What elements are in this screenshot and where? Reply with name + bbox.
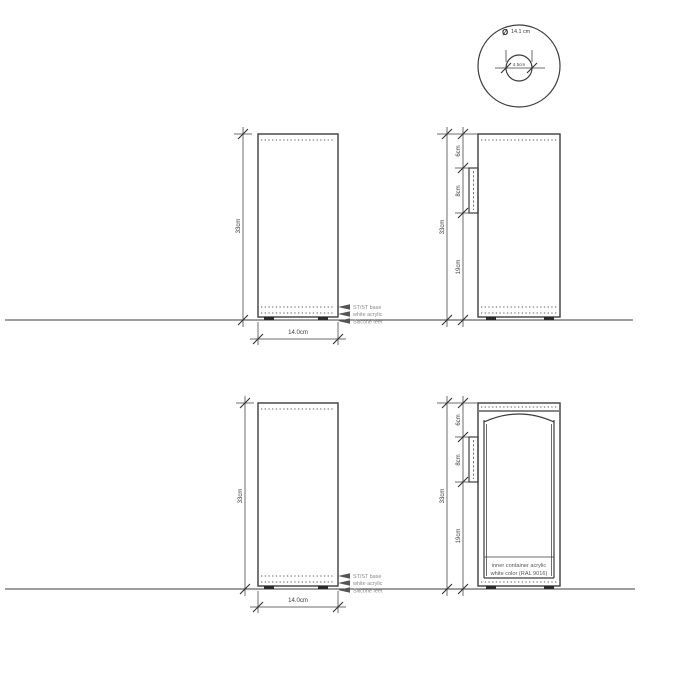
callout-acrylic: white acrylic [352, 581, 383, 587]
section-note-line2: white color (RAL 9016) [490, 571, 548, 577]
width-dimension: 14.0cm [250, 591, 346, 613]
section-view-bottom: inner container acrylic white color (RAL… [437, 396, 560, 596]
segment-bottom-label: 19cm [456, 260, 462, 275]
callout-base: ST/ST base [353, 574, 381, 580]
callout-arrow-icon [338, 304, 350, 310]
foot [486, 586, 496, 589]
width-label: 14.0cm [288, 598, 308, 604]
segment-dimensions: 6cm 8cm 19cm [455, 127, 470, 327]
callout-acrylic: white acrylic [352, 312, 383, 318]
segment-top-label: 6cm [456, 145, 462, 156]
callout-feet: Silicone feet [353, 320, 383, 326]
height-label: 33cm [440, 220, 446, 235]
callout-arrow-icon [338, 573, 350, 579]
height-label: 33cm [238, 489, 244, 504]
material-callouts: ST/ST base white acrylic Silicone feet [338, 573, 383, 594]
diameter-symbol: Ø [502, 28, 508, 37]
foot [318, 586, 328, 589]
foot [486, 317, 496, 320]
callout-base: ST/ST base [353, 305, 381, 311]
segment-middle-label: 8cm [456, 185, 462, 196]
segment-dimensions: 6cm 8cm 19cm [455, 396, 470, 596]
material-callouts: ST/ST base white acrylic Silicone feet [338, 304, 383, 325]
height-label: 33cm [440, 489, 446, 504]
height-dimension: 33cm [236, 396, 254, 596]
foot [264, 586, 274, 589]
foot [544, 317, 554, 320]
segment-middle-label: 8cm [456, 454, 462, 465]
section-note-line1: inner container acrylic [492, 563, 547, 569]
bin-body [478, 134, 560, 317]
segment-bottom-label: 19cm [456, 529, 462, 544]
technical-drawing-canvas: Ø 14.1 cm 4.5cm 33cm 14.0cm ST/ST ba [0, 0, 700, 700]
foot [318, 317, 328, 320]
bin-body [258, 403, 338, 586]
front-elevation-bottom: 33cm 14.0cm ST/ST base white acrylic Sil… [236, 396, 383, 613]
width-dimension: 14.0cm [250, 322, 346, 345]
inner-diameter-label: 4.5cm [513, 62, 526, 67]
callout-feet: Silicone feet [353, 589, 383, 595]
bin-body [258, 134, 338, 317]
front-elevation-top: 33cm 14.0cm ST/ST base white acrylic Sil… [234, 127, 383, 345]
outer-diameter-label: 14.1 cm [511, 29, 531, 35]
callout-arrow-icon [338, 587, 350, 593]
segment-top-label: 6cm [456, 414, 462, 425]
foot [544, 586, 554, 589]
drawing-svg: Ø 14.1 cm 4.5cm 33cm 14.0cm ST/ST ba [0, 0, 700, 700]
width-label: 14.0cm [288, 330, 308, 336]
bin-body [478, 403, 560, 586]
callout-arrow-icon [338, 311, 350, 317]
height-label: 33cm [236, 219, 242, 234]
side-elevation-top: 33cm 6cm 8cm 19cm [437, 127, 560, 327]
top-view: Ø 14.1 cm 4.5cm [478, 25, 560, 107]
height-dimension: 33cm [234, 127, 252, 327]
foot [264, 317, 274, 320]
callout-arrow-icon [338, 318, 350, 324]
callout-arrow-icon [338, 580, 350, 586]
